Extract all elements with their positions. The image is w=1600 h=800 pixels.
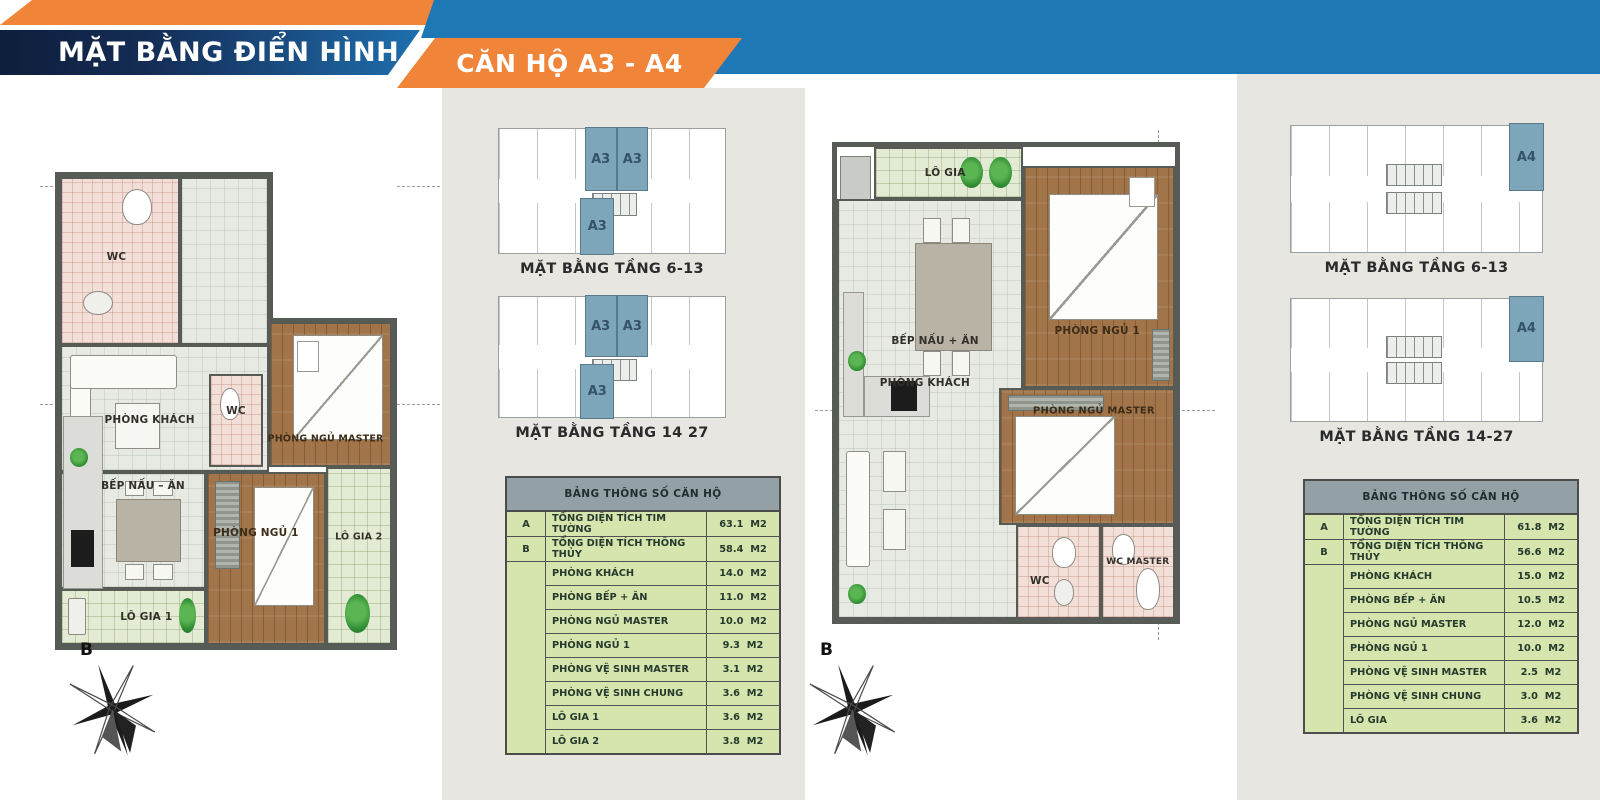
room-label-master: PHÒNG NGỦ MASTER [268, 434, 384, 445]
unit-a3-cell: A3 [617, 295, 649, 357]
room-label-logia2: LÔ GIA 2 [335, 532, 382, 543]
row-value: 10.0 M2 [1505, 637, 1579, 661]
row-label: PHÒNG NGỦ MASTER [546, 610, 707, 634]
row-label: TỔNG DIỆN TÍCH TIM TƯỜNG [546, 511, 707, 537]
room-label-bed1: PHÒNG NGỦ 1 [1054, 325, 1140, 337]
room-master [269, 322, 392, 467]
room-wc-master [1101, 525, 1175, 619]
row-value: 58.4 M2 [707, 537, 781, 562]
pillow-icon [297, 341, 318, 372]
stove-icon [71, 530, 94, 568]
row-value: 2.5 M2 [1505, 661, 1579, 685]
room-label-living: PHÒNG KHÁCH [105, 414, 195, 426]
row-value: 10.5 M2 [1505, 589, 1579, 613]
room-label-logia1: LÔ GIA 1 [120, 611, 172, 623]
chair-icon [153, 564, 173, 580]
room-label-wc: WC [1030, 575, 1050, 587]
row-label: TỔNG DIỆN TÍCH TIM TƯỜNG [1344, 514, 1505, 540]
unit-a4-cell: A4 [1509, 123, 1544, 191]
table-row: ATỔNG DIỆN TÍCH TIM TƯỜNG61.8 M2 [1304, 514, 1578, 540]
row-label: PHÒNG VỆ SINH MASTER [1344, 661, 1505, 685]
bed-icon [254, 487, 314, 605]
table-row: PHÒNG NGỦ 110.0 M2 [1304, 637, 1578, 661]
floorplan-a3: WC WC PHÒNG KHÁCH BẾP NẤU – ĂN PHÒNG NGỦ… [55, 172, 397, 650]
compass-north-icon [58, 640, 168, 765]
room-label-living: PHÒNG KHÁCH [880, 377, 970, 389]
elevator-core-icon [1386, 164, 1441, 187]
plant-icon [848, 584, 866, 605]
compass-north-label: B [80, 640, 93, 660]
room-label-kitchen: BẾP NẤU – ĂN [101, 480, 185, 492]
keyplan-building: A4 [1290, 125, 1543, 253]
keyplan-caption: MẶT BẰNG TẦNG 14 27 [498, 425, 726, 441]
row-label: PHÒNG BẾP + ĂN [546, 586, 707, 610]
plan-notch [269, 172, 397, 322]
table-row: ATỔNG DIỆN TÍCH TIM TƯỜNG63.1 M2 [506, 511, 780, 537]
bathtub-icon [1136, 568, 1160, 610]
sink-icon [1054, 579, 1075, 606]
table-row: PHÒNG VỆ SINH CHUNG3.6 M2 [506, 682, 780, 706]
compass-north-icon [798, 640, 908, 765]
keyplan-building: A3 A3 A3 [498, 296, 726, 418]
row-key: A [1304, 514, 1344, 540]
spec-table-a4: BẢNG THÔNG SỐ CĂN HỘATỔNG DIỆN TÍCH TIM … [1303, 479, 1579, 734]
compass-a3: B [58, 640, 168, 765]
row-label: PHÒNG NGỦ MASTER [1344, 613, 1505, 637]
row-value: 12.0 M2 [1505, 613, 1579, 637]
kitchen-counter [63, 416, 103, 589]
row-label: TỔNG DIỆN TÍCH THÔNG THỦY [1344, 540, 1505, 565]
row-label: PHÒNG VỆ SINH CHUNG [546, 682, 707, 706]
table-row: PHÒNG VỆ SINH CHUNG3.0 M2 [1304, 685, 1578, 709]
table-row: PHÒNG BẾP + ĂN10.5 M2 [1304, 589, 1578, 613]
row-label: PHÒNG BẾP + ĂN [1344, 589, 1505, 613]
row-key-empty [506, 562, 546, 755]
row-key: A [506, 511, 546, 537]
row-value: 63.1 M2 [707, 511, 781, 537]
row-key: B [1304, 540, 1344, 565]
brochure-page: { "header": { "title": "MẶT BẰNG ĐIỂN HÌ… [0, 0, 1600, 800]
row-label: PHÒNG VỆ SINH CHUNG [1344, 685, 1505, 709]
table-row: PHÒNG VỆ SINH MASTER3.1 M2 [506, 658, 780, 682]
keyplan-caption: MẶT BẰNG TẦNG 6-13 [498, 261, 726, 277]
compass-north-label: B [820, 640, 833, 660]
header-blue-strip [421, 0, 1600, 38]
stair-core-icon [1386, 362, 1441, 384]
unit-a3-cell: A3 [580, 364, 614, 419]
keyplan-caption: MẶT BẰNG TẦNG 14-27 [1290, 429, 1543, 445]
page-title: MẶT BẰNG ĐIỂN HÌNH [0, 30, 420, 75]
row-value: 11.0 M2 [707, 586, 781, 610]
row-value: 9.3 M2 [707, 634, 781, 658]
floorplan-a4: LÔ GIA BẾP NẤU + ĂN PHÒNG KHÁCH PHÒNG NG… [832, 142, 1180, 624]
room-kitchen-living [837, 199, 1023, 619]
room-label-master: PHÒNG NGỦ MASTER [1033, 406, 1155, 417]
unit-a3-cell: A3 [585, 127, 617, 191]
room-label-logia: LÔ GIA [925, 167, 966, 179]
washer-icon [68, 598, 86, 635]
plant-icon [179, 598, 196, 632]
spec-table-a3: BẢNG THÔNG SỐ CĂN HỘATỔNG DIỆN TÍCH TIM … [505, 476, 781, 755]
keyplan-building: A4 [1290, 298, 1543, 422]
technical-shaft [840, 156, 870, 203]
sink-icon [83, 291, 113, 316]
toilet-icon [1052, 537, 1076, 568]
row-label: PHÒNG NGỦ 1 [1344, 637, 1505, 661]
table-row: LÔ GIA 13.6 M2 [506, 706, 780, 730]
room-wc2 [209, 374, 262, 468]
room-bed1 [1023, 166, 1175, 388]
row-label: LÔ GIA [1344, 709, 1505, 734]
row-label: TỔNG DIỆN TÍCH THÔNG THỦY [546, 537, 707, 562]
row-value: 61.8 M2 [1505, 514, 1579, 540]
table-row: LÔ GIA 23.8 M2 [506, 730, 780, 755]
row-value: 56.6 M2 [1505, 540, 1579, 565]
toilet-icon [122, 189, 152, 225]
sofa-icon [70, 355, 177, 389]
table-title: BẢNG THÔNG SỐ CĂN HỘ [506, 477, 780, 511]
dining-table-icon [116, 499, 181, 562]
room-wc [1016, 525, 1101, 619]
row-value: 3.8 M2 [707, 730, 781, 755]
plant-icon [345, 594, 370, 632]
plant-icon [989, 157, 1012, 189]
table-row: PHÒNG NGỦ MASTER10.0 M2 [506, 610, 780, 634]
armchair-icon [883, 451, 907, 493]
chair-icon [125, 564, 145, 580]
table-title: BẢNG THÔNG SỐ CĂN HỘ [1304, 480, 1578, 514]
row-key-empty [1304, 565, 1344, 734]
header-blue-right [700, 38, 1600, 74]
keyplan-a4-2: A4 MẶT BẰNG TẦNG 14-27 [1290, 298, 1543, 445]
keyplan-a4-1: A4 MẶT BẰNG TẦNG 6-13 [1290, 125, 1543, 276]
room-entry [180, 177, 270, 345]
keyplan-a3-2: A3 A3 A3 MẶT BẰNG TẦNG 14 27 [498, 296, 726, 441]
elevator-core-icon [1386, 336, 1441, 358]
table-row: LÔ GIA3.6 M2 [1304, 709, 1578, 734]
table-row: PHÒNG BẾP + ĂN11.0 M2 [506, 586, 780, 610]
stair-core-icon [1386, 192, 1441, 215]
row-label: PHÒNG KHÁCH [1344, 565, 1505, 589]
room-label-wc1: WC [107, 251, 127, 263]
row-label: LÔ GIA 1 [546, 706, 707, 730]
room-label-bed1: PHÒNG NGỦ 1 [213, 527, 299, 539]
room-bed1 [206, 472, 326, 645]
row-value: 3.6 M2 [1505, 709, 1579, 734]
row-value: 3.1 M2 [707, 658, 781, 682]
room-label-wc2: WC [226, 405, 246, 417]
table-row: BTỔNG DIỆN TÍCH THÔNG THỦY56.6 M2 [1304, 540, 1578, 565]
room-label-kitchen: BẾP NẤU + ĂN [891, 335, 978, 347]
wardrobe-icon [215, 481, 240, 569]
keyplan-caption: MẶT BẰNG TẦNG 6-13 [1290, 260, 1543, 276]
table-row: BTỔNG DIỆN TÍCH THÔNG THỦY58.4 M2 [506, 537, 780, 562]
row-label: PHÒNG VỆ SINH MASTER [546, 658, 707, 682]
table-row: PHÒNG NGỦ MASTER12.0 M2 [1304, 613, 1578, 637]
page-subtitle: CĂN HỘ A3 - A4 [397, 38, 742, 88]
bed-icon [1015, 416, 1115, 514]
chair-icon [923, 351, 941, 376]
compass-a4: B [798, 640, 908, 765]
table-row: PHÒNG KHÁCH14.0 M2 [506, 562, 780, 586]
sofa-icon [846, 451, 870, 568]
table-row: PHÒNG VỆ SINH MASTER2.5 M2 [1304, 661, 1578, 685]
bed-icon [1049, 194, 1159, 320]
row-key: B [506, 537, 546, 562]
chair-icon [923, 218, 941, 243]
row-label: PHÒNG NGỦ 1 [546, 634, 707, 658]
unit-a3-cell: A3 [585, 295, 617, 357]
row-value: 3.0 M2 [1505, 685, 1579, 709]
unit-a4-cell: A4 [1509, 296, 1544, 362]
chair-icon [952, 218, 970, 243]
row-value: 3.6 M2 [707, 706, 781, 730]
armchair-icon [883, 509, 907, 551]
row-value: 3.6 M2 [707, 682, 781, 706]
keyplan-building: A3 A3 A3 [498, 128, 726, 254]
row-label: PHÒNG KHÁCH [546, 562, 707, 586]
pillow-icon [1129, 177, 1156, 207]
table-title-row: BẢNG THÔNG SỐ CĂN HỘ [506, 477, 780, 511]
room-label-wc-master: WC MASTER [1106, 557, 1169, 567]
wardrobe-icon [1152, 329, 1170, 381]
unit-a3-cell: A3 [617, 127, 649, 191]
table-title-row: BẢNG THÔNG SỐ CĂN HỘ [1304, 480, 1578, 514]
unit-a3-cell: A3 [580, 198, 614, 255]
row-value: 15.0 M2 [1505, 565, 1579, 589]
table-row: PHÒNG KHÁCH15.0 M2 [1304, 565, 1578, 589]
row-value: 14.0 M2 [707, 562, 781, 586]
row-label: LÔ GIA 2 [546, 730, 707, 755]
keyplan-a3-1: A3 A3 A3 MẶT BẰNG TẦNG 6-13 [498, 128, 726, 277]
chair-icon [952, 351, 970, 376]
row-value: 10.0 M2 [707, 610, 781, 634]
table-row: PHÒNG NGỦ 19.3 M2 [506, 634, 780, 658]
room-logia2 [326, 467, 392, 645]
